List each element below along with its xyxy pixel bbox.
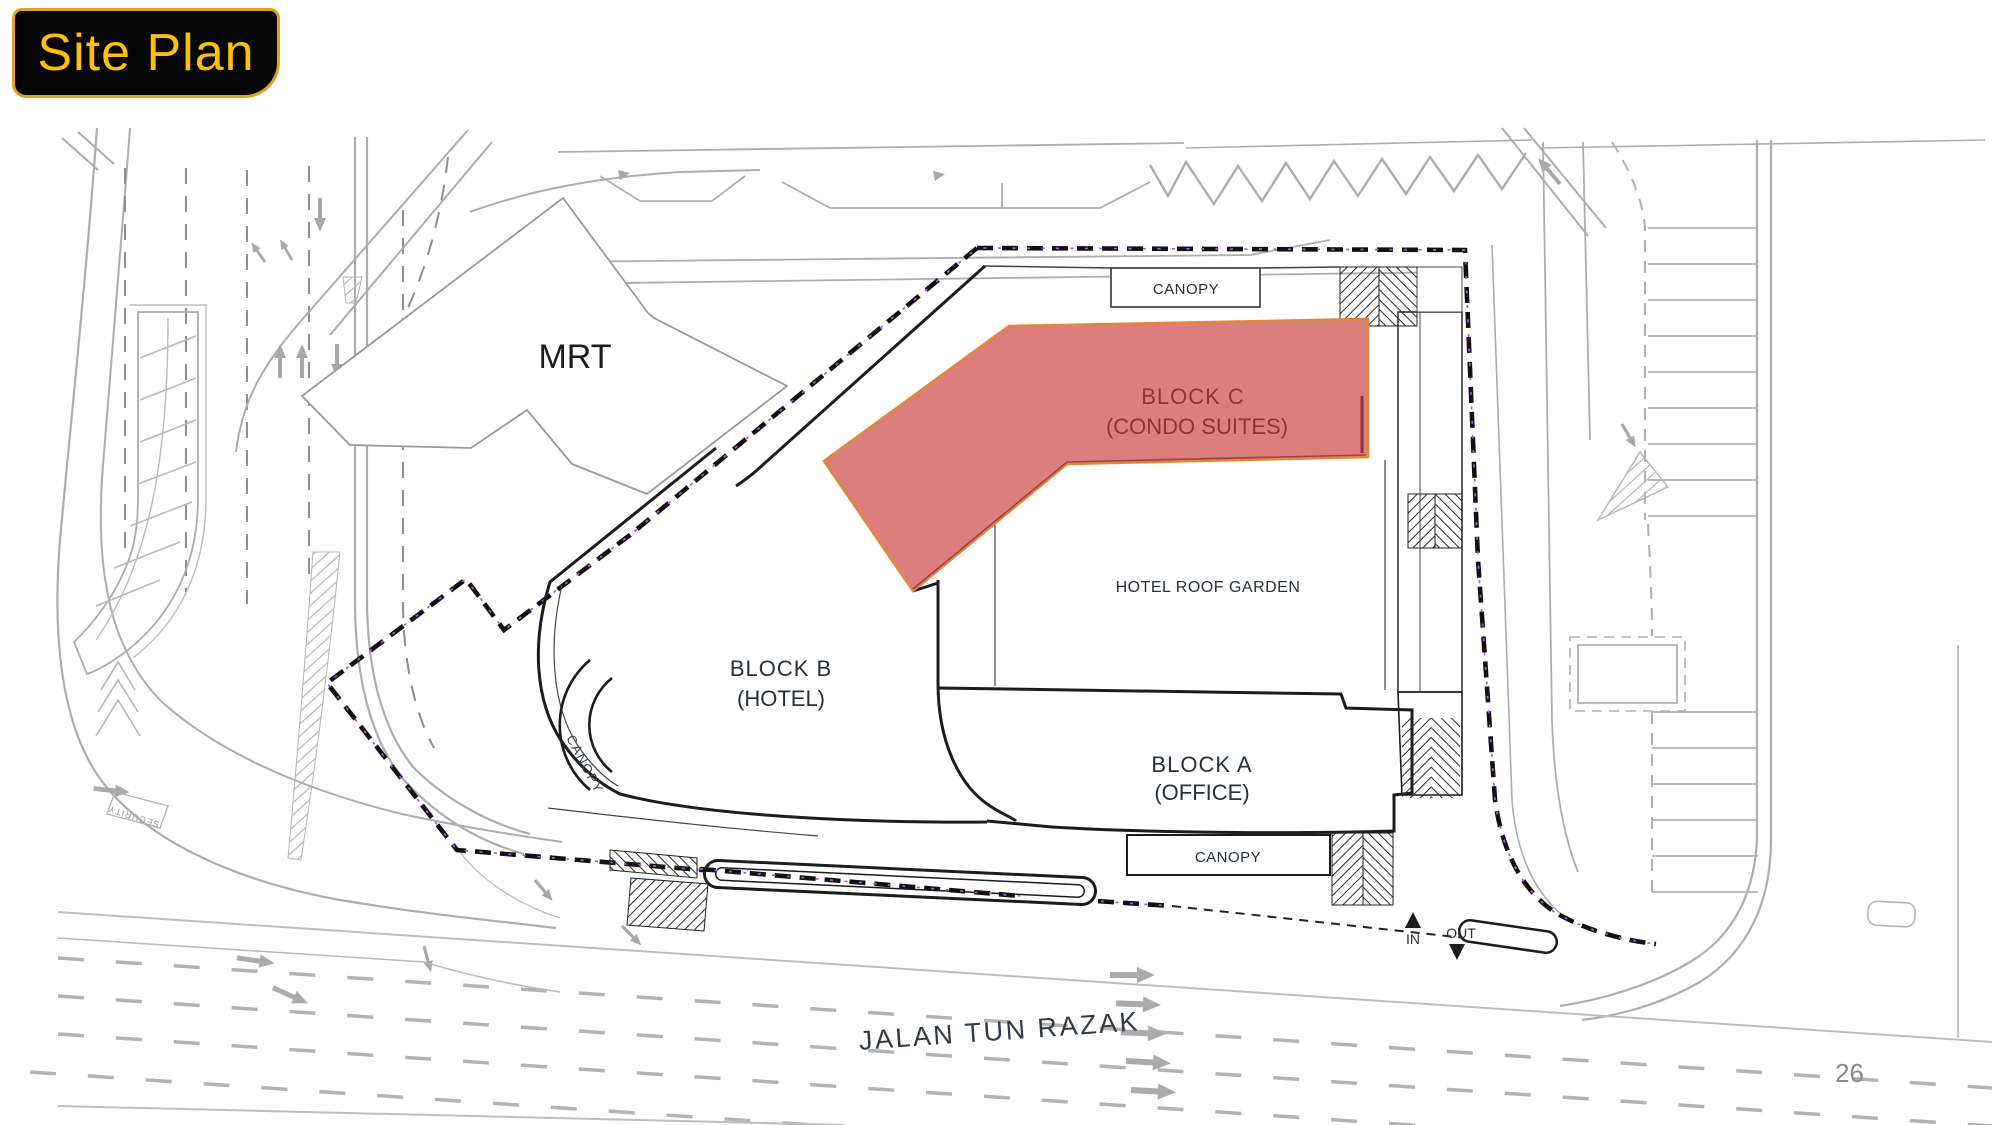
gate-in-out: IN OUT bbox=[1405, 912, 1476, 960]
slide: SECURITY bbox=[0, 0, 2000, 1125]
site-plan-drawing: SECURITY bbox=[0, 0, 2000, 1125]
block-c-building: BLOCK C (CONDO SUITES) bbox=[824, 319, 1368, 591]
right-parking-area bbox=[1492, 140, 1958, 1038]
block-b-label: BLOCK B bbox=[730, 656, 832, 681]
bottom-road: JALAN TUN RAZAK bbox=[30, 782, 1992, 1125]
canopy-bottom-label: CANOPY bbox=[1195, 849, 1261, 866]
mrt-label: MRT bbox=[538, 338, 611, 376]
gate-out-label: OUT bbox=[1446, 925, 1476, 941]
roof-garden-label: HOTEL ROOF GARDEN bbox=[1116, 579, 1301, 596]
canopy-top: CANOPY bbox=[985, 266, 1462, 326]
block-b-sub-label: (HOTEL) bbox=[737, 686, 825, 711]
page-number: 26 bbox=[1835, 1058, 1864, 1088]
block-c-label: BLOCK C bbox=[1141, 384, 1245, 409]
block-a-sub-label: (OFFICE) bbox=[1154, 780, 1249, 805]
canopy-top-label: CANOPY bbox=[1153, 281, 1219, 298]
slide-title-badge: Site Plan bbox=[12, 8, 280, 98]
gate-in-label: IN bbox=[1406, 931, 1420, 947]
block-a-label: BLOCK A bbox=[1151, 752, 1252, 777]
slide-title: Site Plan bbox=[37, 23, 254, 83]
road-name-label: JALAN TUN RAZAK bbox=[858, 1006, 1141, 1056]
block-c-sub-label: (CONDO SUITES) bbox=[1106, 414, 1288, 439]
security-label: SECURITY bbox=[107, 804, 161, 830]
